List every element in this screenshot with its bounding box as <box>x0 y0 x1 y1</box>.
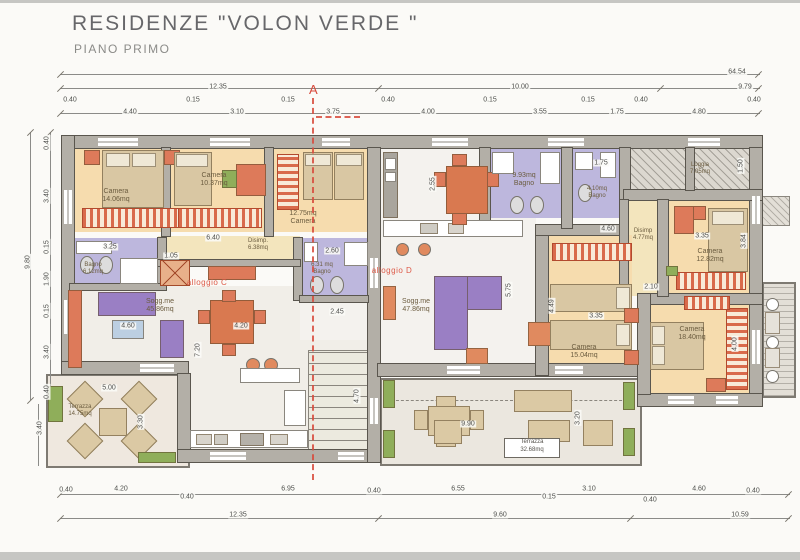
dimension-label: 4.80 <box>691 109 707 116</box>
dimension-tick <box>785 515 792 522</box>
fixture <box>575 152 593 170</box>
window-opening <box>140 364 174 372</box>
section-line <box>312 98 314 480</box>
dimension-label: 9.80 <box>25 254 32 270</box>
fixture-round <box>510 196 524 214</box>
dimension-label: 0.15 <box>280 97 296 104</box>
dimension-label: 3.10 <box>581 486 597 493</box>
room-label: Loggia 7.05mq <box>690 162 710 176</box>
room-fill <box>158 236 300 262</box>
dimension-label: 64.54 <box>727 69 747 76</box>
room-label: Terrazza 14.75mq <box>68 404 91 418</box>
dimension-label: 4.70 <box>354 388 361 404</box>
exterior-stair <box>762 196 790 226</box>
furniture <box>446 166 488 214</box>
shower <box>160 260 190 286</box>
floor-plan-page: RESIDENZE "VOLON VERDE " PIANO PRIMO Cam… <box>0 0 800 560</box>
furniture <box>652 326 665 345</box>
fixture <box>240 368 300 383</box>
dimension-label: 3.75 <box>325 109 341 116</box>
dimension-label: 1.90 <box>44 271 51 287</box>
furniture <box>765 348 780 368</box>
dimension-label: 4.00 <box>732 336 739 352</box>
furniture <box>270 434 288 445</box>
room-label: Camera 10.37mq <box>200 172 227 188</box>
room-label: Bagno 6.12mq <box>83 262 103 276</box>
fixture-round <box>766 370 779 383</box>
dimension-label: 3.84 <box>741 233 748 249</box>
window-opening <box>432 138 468 146</box>
furniture <box>196 434 212 445</box>
window-opening <box>752 196 760 224</box>
wall <box>178 374 190 462</box>
dimension-label: 0.40 <box>44 135 51 151</box>
furniture <box>336 154 362 166</box>
dimension-label: 0.40 <box>746 97 762 104</box>
fixture <box>304 242 318 262</box>
dimension-label: 9.90 <box>460 421 476 428</box>
furniture <box>466 348 488 364</box>
wardrobe <box>684 296 730 310</box>
wall <box>294 238 302 300</box>
wall <box>624 190 762 200</box>
furniture <box>666 266 678 276</box>
dimension-label: 4.00 <box>420 109 436 116</box>
window-opening <box>98 138 138 146</box>
window-opening <box>64 190 72 224</box>
furniture <box>652 346 665 365</box>
dimension-tick <box>27 397 34 404</box>
room-label: Disimp. 6.38mq <box>248 238 268 252</box>
dimension-label: 3.40 <box>37 420 44 436</box>
wall <box>265 148 273 236</box>
furniture <box>132 153 156 167</box>
wall <box>62 136 762 148</box>
furniture <box>254 310 266 324</box>
furniture <box>452 154 467 166</box>
window-opening <box>210 452 246 460</box>
dimension-tick <box>755 110 762 117</box>
dimension-label: 5.75 <box>506 282 513 298</box>
terrace-dashed-line <box>386 400 632 401</box>
furniture <box>198 310 210 324</box>
dimension-tick <box>755 71 762 78</box>
section-mark-label: A <box>309 82 318 97</box>
dimension-label: 3.40 <box>44 188 51 204</box>
wall <box>750 148 762 406</box>
dimension-label: 0.15 <box>44 239 51 255</box>
dimension-label: 0.15 <box>580 97 596 104</box>
fixture <box>540 152 560 184</box>
fixture <box>385 172 396 182</box>
wardrobe <box>552 243 632 261</box>
dimension-label: 5.00 <box>101 385 117 392</box>
window-opening <box>555 366 583 374</box>
dimension-label: 4.60 <box>120 323 136 330</box>
room-label: Camera 15.04mq <box>570 344 597 360</box>
dimension-label: 0.15 <box>44 303 51 319</box>
window-opening <box>716 396 738 404</box>
wall <box>562 148 572 228</box>
fixture <box>120 258 158 284</box>
wall <box>638 394 762 406</box>
dimension-label: 3.55 <box>532 109 548 116</box>
dimension-label: 6.95 <box>280 486 296 493</box>
floor-plan-drawing: Camera 14.06mqCamera 10.37mq12.75mq Came… <box>0 0 800 560</box>
dimension-line <box>60 113 760 114</box>
dimension-label: 3.35 <box>588 313 604 320</box>
fixture <box>284 390 306 426</box>
dimension-label: 0.15 <box>185 97 201 104</box>
dimension-label: 12.35 <box>208 84 228 91</box>
wall <box>378 364 638 376</box>
dimension-label: 0.40 <box>380 97 396 104</box>
dimension-label: 0.40 <box>642 497 658 504</box>
fixture-round <box>766 298 779 311</box>
furniture <box>68 290 82 368</box>
dimension-label: 12.35 <box>228 512 248 519</box>
dimension-tick <box>785 491 792 498</box>
dimension-label: 0.40 <box>58 487 74 494</box>
furniture <box>240 433 264 446</box>
window-opening <box>338 452 364 460</box>
dimension-label: 4.49 <box>549 298 556 314</box>
furniture <box>99 408 127 436</box>
fixture <box>385 158 396 170</box>
dimension-label: 6.40 <box>205 235 221 242</box>
furniture <box>706 378 726 392</box>
dimension-label: 1.50 <box>738 158 745 174</box>
dimension-label: 0.40 <box>44 384 51 400</box>
room-fill <box>628 200 658 296</box>
room-label: Camera 12.82mq <box>696 248 723 264</box>
dimension-label: 4.40 <box>122 109 138 116</box>
furniture <box>616 287 630 309</box>
dimension-label: 10.00 <box>510 84 530 91</box>
furniture <box>236 164 266 196</box>
furniture <box>434 276 468 350</box>
furniture <box>583 420 613 446</box>
furniture <box>222 344 236 356</box>
window-opening <box>210 138 250 146</box>
furniture <box>623 382 635 410</box>
dimension-line <box>60 518 790 519</box>
dimension-label: 1.05 <box>163 253 179 260</box>
dimension-label: 10.59 <box>730 512 750 519</box>
fixture-round <box>396 243 409 256</box>
furniture <box>160 320 184 358</box>
dimension-label: 1.75 <box>609 109 625 116</box>
dimension-label: 0.40 <box>745 488 761 495</box>
furniture <box>624 308 639 323</box>
terrace-label-box: Terrazza 32.68mq <box>504 438 560 458</box>
wardrobe <box>676 272 746 290</box>
room-label: 4.10mq Bagno <box>587 186 607 200</box>
wall <box>70 284 166 290</box>
wall <box>658 200 668 296</box>
dimension-label: 4.60 <box>691 486 707 493</box>
dimension-label: 3.10 <box>229 109 245 116</box>
furniture <box>623 428 635 456</box>
dimension-label: 2.60 <box>324 248 340 255</box>
furniture <box>138 452 176 463</box>
window-opening <box>447 366 480 374</box>
furniture <box>106 153 130 167</box>
dimension-label: 0.40 <box>366 488 382 495</box>
window-opening <box>370 398 378 424</box>
dimension-label: 2.45 <box>329 309 345 316</box>
wardrobe <box>178 208 262 228</box>
fixture <box>344 242 368 266</box>
wall <box>536 225 548 375</box>
furniture <box>434 420 462 444</box>
room-label: Camera 18.40mq <box>678 326 705 342</box>
dimension-label: 9.60 <box>492 512 508 519</box>
wall <box>300 296 368 302</box>
room-label: Disimp 4.77mq <box>633 228 653 242</box>
dimension-label: 4.20 <box>233 323 249 330</box>
dimension-label: 9.79 <box>737 84 753 91</box>
furniture <box>765 312 780 334</box>
dimension-label: 0.40 <box>179 494 195 501</box>
furniture <box>214 434 228 445</box>
dimension-line <box>60 74 760 75</box>
room-label: alloggio D <box>372 266 413 275</box>
dimension-label: 3.30 <box>138 414 145 430</box>
furniture <box>624 350 639 365</box>
furniture <box>436 396 456 407</box>
wall <box>638 294 650 394</box>
furniture <box>514 390 572 412</box>
furniture <box>452 213 467 225</box>
room-label: Sogg.me 45.86mq <box>146 298 174 314</box>
fixture-round <box>418 243 431 256</box>
dimension-label: 4.60 <box>600 226 616 233</box>
wardrobe <box>277 154 299 210</box>
room-fill <box>300 298 368 340</box>
furniture <box>692 206 706 220</box>
dimension-label: 2.55 <box>430 176 437 192</box>
dimension-label: 1.75 <box>593 160 609 167</box>
room-label: Sogg.me 47.86mq <box>402 298 430 314</box>
room-label: 9.93mq Bagno <box>512 172 535 188</box>
dimension-label: 4.20 <box>113 486 129 493</box>
furniture <box>420 223 438 234</box>
dimension-label: 0.40 <box>62 97 78 104</box>
dimension-label: 0.15 <box>482 97 498 104</box>
dimension-label: 0.40 <box>633 97 649 104</box>
dimension-label: 6.55 <box>450 486 466 493</box>
room-label: 6.31 mq Bagno <box>311 262 333 276</box>
window-opening <box>322 138 350 146</box>
dimension-label: 7.20 <box>195 342 202 358</box>
furniture <box>305 154 331 166</box>
dimension-label: 3.25 <box>102 244 118 251</box>
furniture <box>414 410 428 430</box>
dimension-label: 3.35 <box>694 233 710 240</box>
fixture <box>492 152 514 174</box>
window-opening <box>752 330 760 364</box>
wardrobe <box>82 208 180 228</box>
dimension-label: 3.40 <box>44 344 51 360</box>
furniture <box>712 211 744 225</box>
dimension-label: 2.10 <box>643 284 659 291</box>
window-opening <box>548 138 584 146</box>
furniture <box>674 206 694 234</box>
section-line-branch <box>316 116 360 118</box>
furniture <box>383 430 395 458</box>
dimension-line <box>60 494 790 495</box>
window-opening <box>688 138 720 146</box>
furniture <box>487 172 499 187</box>
fixture-round <box>530 196 544 214</box>
room-label: Camera 14.06mq <box>102 188 129 204</box>
dimension-label: 3.20 <box>575 410 582 426</box>
fixture-round <box>330 276 344 294</box>
room-label: alloggio C <box>187 278 228 287</box>
furniture <box>84 150 100 165</box>
dimension-tick <box>755 85 762 92</box>
furniture <box>222 290 236 302</box>
dimension-line <box>60 88 760 89</box>
furniture <box>616 324 630 346</box>
furniture <box>176 154 208 167</box>
furniture <box>383 286 396 320</box>
furniture <box>383 380 395 408</box>
window-opening <box>668 396 694 404</box>
dimension-label: 0.15 <box>541 494 557 501</box>
